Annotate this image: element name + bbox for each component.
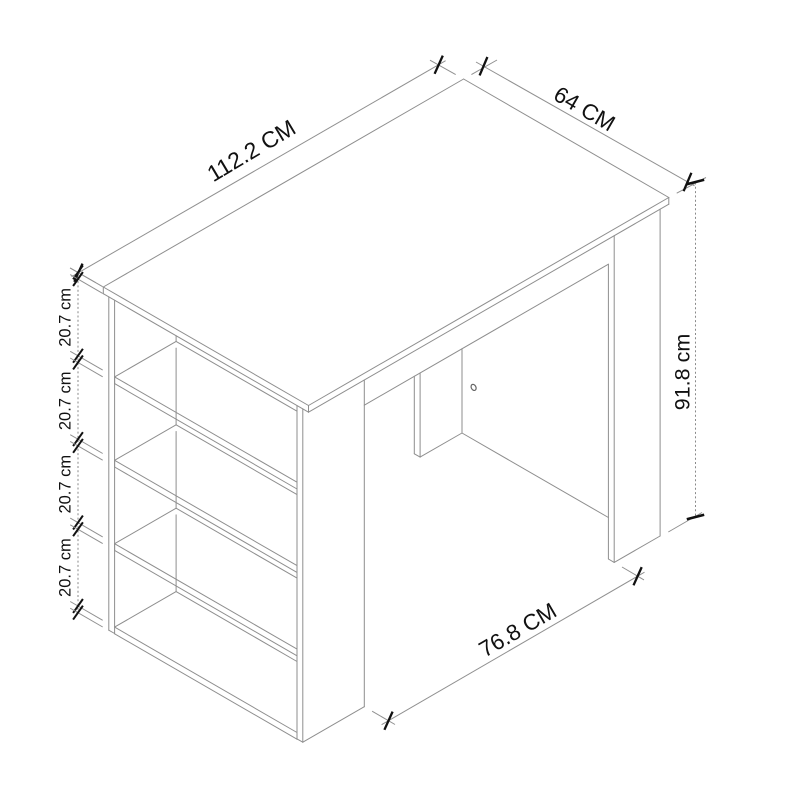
svg-text:91.8 cm: 91.8 cm	[671, 334, 695, 410]
svg-text:20.7 cm: 20.7 cm	[56, 371, 74, 430]
svg-text:20.7 cm: 20.7 cm	[56, 538, 74, 597]
svg-text:20.7 cm: 20.7 cm	[56, 455, 74, 514]
svg-text:20.7 cm: 20.7 cm	[56, 288, 74, 347]
